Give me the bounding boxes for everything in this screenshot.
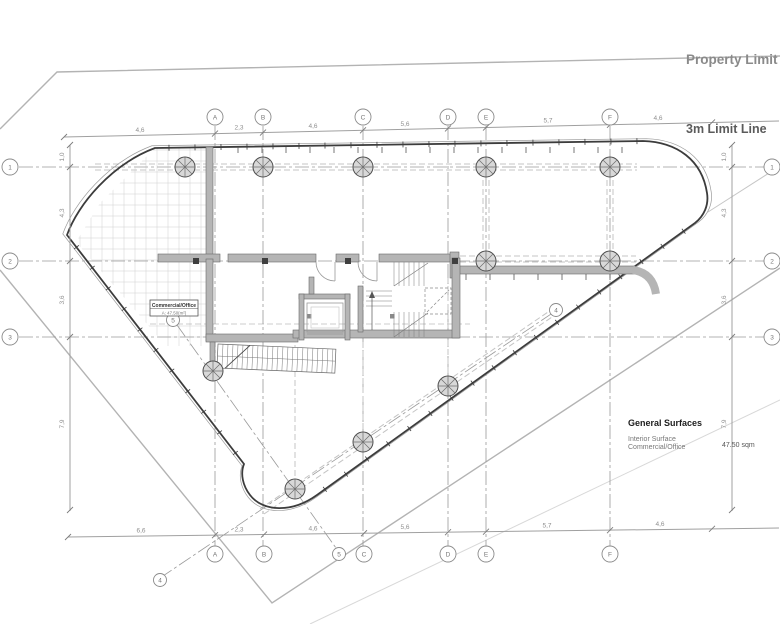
grid-bubble: C — [355, 109, 371, 125]
dimension-value: 5,7 — [542, 522, 551, 529]
svg-text:E: E — [484, 114, 489, 121]
grid-bubble: 3 — [764, 329, 780, 345]
dimension-value: 5,7 — [543, 118, 552, 125]
stair-dashed-upper-flight — [425, 288, 451, 314]
grid-bubble: E — [478, 109, 494, 125]
dimension-value: 6,6 — [136, 528, 145, 535]
dimension-value: 4,3 — [721, 208, 728, 217]
svg-text:F: F — [608, 114, 612, 121]
svg-text:5: 5 — [171, 317, 175, 324]
wall-column-markers — [193, 258, 458, 319]
dimension-value: 5,6 — [400, 524, 409, 531]
dimension-value: 1,0 — [59, 152, 66, 161]
grid-bubble: 4 — [550, 304, 563, 317]
grid-bubble: A — [207, 109, 223, 125]
column-marker — [353, 432, 373, 452]
svg-text:3: 3 — [8, 334, 12, 341]
svg-text:3: 3 — [770, 334, 774, 341]
svg-text:A: A — [213, 114, 218, 121]
grid-bubble: D — [440, 109, 456, 125]
legend-surface-value: 47.50 sqm — [722, 442, 755, 449]
svg-text:4: 4 — [158, 577, 162, 584]
column-marker — [203, 361, 223, 381]
grid-bubble: 2 — [764, 253, 780, 269]
external-stair — [217, 344, 336, 373]
svg-text:B: B — [262, 551, 266, 558]
grid-bubble: 1 — [764, 159, 780, 175]
grid-bubble: F — [602, 109, 618, 125]
svg-text:1: 1 — [770, 164, 774, 171]
grid-bubble: C — [356, 546, 372, 562]
svg-text:C: C — [361, 114, 366, 121]
svg-text:5: 5 — [337, 551, 341, 558]
dimension-value: 4,6 — [135, 127, 144, 134]
dimension-value: 4,6 — [308, 123, 317, 130]
door-swings — [316, 262, 377, 281]
svg-text:F: F — [608, 551, 612, 558]
dimension-value: 2,3 — [234, 526, 243, 533]
svg-text:4: 4 — [554, 307, 558, 314]
column-marker — [353, 157, 373, 177]
dimension-value: 1,0 — [721, 152, 728, 161]
svg-text:1: 1 — [8, 164, 12, 171]
limit-line-label: 3m Limit Line — [686, 122, 767, 136]
column-marker — [285, 479, 305, 499]
core-stairs — [366, 262, 428, 337]
legend-surface-sublabel: Commercial/Office — [628, 444, 686, 451]
svg-text:2: 2 — [8, 258, 12, 265]
terrace-glazing-grid — [74, 146, 214, 347]
grid-bubble: B — [255, 109, 271, 125]
dimension-value: 7,9 — [721, 419, 728, 428]
svg-text:D: D — [446, 551, 451, 558]
general-surfaces-legend: General Surfaces Interior Surface Commer… — [628, 418, 755, 451]
room-tag-title: Commercial/Office — [152, 303, 196, 309]
dimension-value: 3,6 — [721, 295, 728, 304]
svg-text:A: A — [213, 551, 218, 558]
svg-text:C: C — [362, 551, 367, 558]
grid-bubbles: ABCDEFABCDEF1231234455 — [2, 109, 780, 587]
column-marker — [476, 251, 496, 271]
dimension-labels: 4,62,34,65,65,74,66,62,34,65,65,74,61,04… — [59, 115, 728, 534]
dimension-value: 4,6 — [308, 525, 317, 532]
floor-plan-canvas: 4,62,34,65,65,74,66,62,34,65,65,74,61,04… — [0, 0, 780, 624]
svg-text:E: E — [484, 551, 489, 558]
dimension-value: 4,3 — [59, 208, 66, 217]
dimension-value: 4,6 — [653, 115, 662, 122]
grid-bubble: 4 — [154, 574, 167, 587]
grid-bubble: A — [207, 546, 223, 562]
column-marker — [175, 157, 195, 177]
grid-bubble: 3 — [2, 329, 18, 345]
room-tag: Commercial/Office A: 47.50(m²) — [150, 300, 198, 316]
svg-text:D: D — [446, 114, 451, 121]
grid-bubble: D — [440, 546, 456, 562]
floor-plan-drawing: 4,62,34,65,65,74,66,62,34,65,65,74,61,04… — [0, 0, 780, 624]
grid-bubble: 1 — [2, 159, 18, 175]
legend-title: General Surfaces — [628, 418, 702, 428]
column-marker — [600, 157, 620, 177]
dimension-value: 3,6 — [59, 295, 66, 304]
dimension-value: 2,3 — [234, 125, 243, 132]
grid-bubble: 5 — [333, 548, 346, 561]
column-marker — [438, 376, 458, 396]
svg-text:2: 2 — [770, 258, 774, 265]
svg-text:B: B — [261, 114, 265, 121]
property-limit-label: Property Limit — [686, 52, 778, 67]
grid-bubble: B — [256, 546, 272, 562]
grid-bubble: F — [602, 546, 618, 562]
grid-bubble: 2 — [2, 253, 18, 269]
grid-bubble: E — [478, 546, 494, 562]
columns — [175, 157, 620, 499]
property-limit-lines — [0, 56, 780, 624]
elevator — [307, 303, 343, 334]
dimension-value: 7,9 — [59, 419, 66, 428]
room-tag-area: A: 47.50(m²) — [162, 311, 187, 316]
wing-wall-curve — [633, 270, 656, 294]
dimension-value: 5,6 — [400, 121, 409, 128]
column-marker — [253, 157, 273, 177]
dimension-value: 4,6 — [655, 521, 664, 528]
column-marker — [600, 251, 620, 271]
column-marker — [476, 157, 496, 177]
dimension-lines — [64, 121, 779, 537]
legend-surface-label: Interior Surface — [628, 436, 676, 443]
